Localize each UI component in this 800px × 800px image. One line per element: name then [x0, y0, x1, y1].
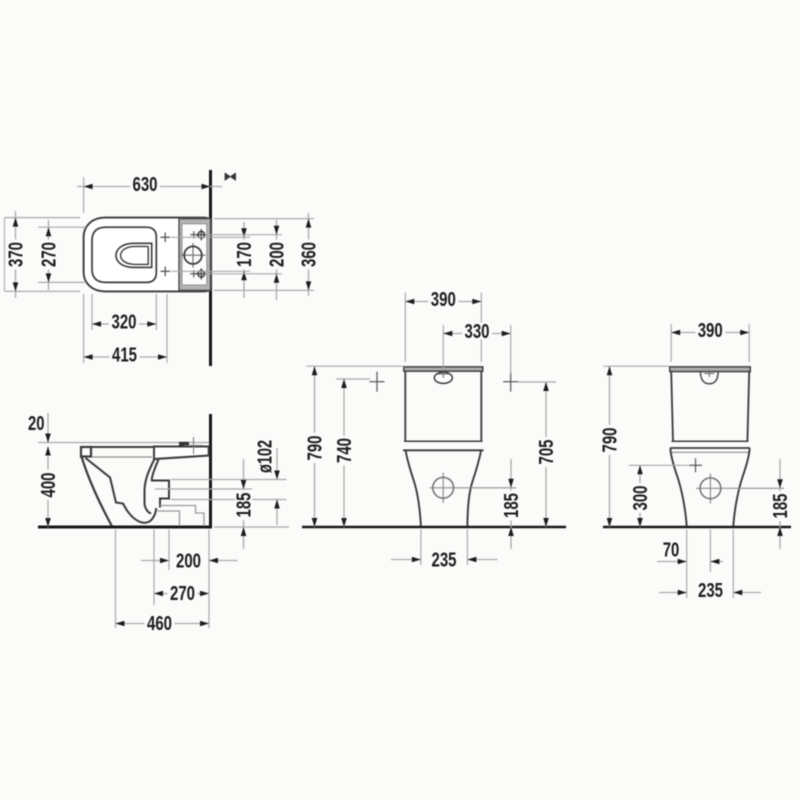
svg-text:630: 630	[133, 174, 158, 196]
svg-text:270: 270	[39, 242, 61, 267]
svg-text:200: 200	[267, 242, 289, 267]
svg-text:400: 400	[38, 473, 60, 498]
svg-text:200: 200	[176, 551, 201, 573]
svg-text:170: 170	[234, 242, 256, 267]
svg-text:415: 415	[112, 345, 137, 367]
svg-text:740: 740	[334, 438, 356, 463]
svg-text:705: 705	[536, 440, 558, 465]
svg-text:360: 360	[299, 242, 321, 267]
svg-text:320: 320	[112, 312, 137, 334]
svg-text:460: 460	[147, 613, 172, 635]
svg-text:790: 790	[305, 436, 327, 461]
svg-text:790: 790	[600, 428, 622, 453]
svg-text:390: 390	[698, 320, 723, 342]
svg-text:235: 235	[698, 580, 723, 602]
svg-text:185: 185	[770, 494, 792, 519]
svg-text:185: 185	[234, 493, 256, 518]
svg-text:270: 270	[170, 583, 195, 605]
svg-text:ø102: ø102	[255, 440, 277, 473]
svg-text:370: 370	[6, 242, 28, 267]
svg-text:390: 390	[431, 289, 456, 311]
svg-text:20: 20	[28, 413, 45, 435]
svg-text:235: 235	[432, 550, 457, 572]
svg-text:70: 70	[663, 540, 680, 562]
svg-text:300: 300	[630, 486, 652, 511]
svg-text:330: 330	[465, 321, 490, 343]
svg-text:185: 185	[501, 493, 523, 518]
